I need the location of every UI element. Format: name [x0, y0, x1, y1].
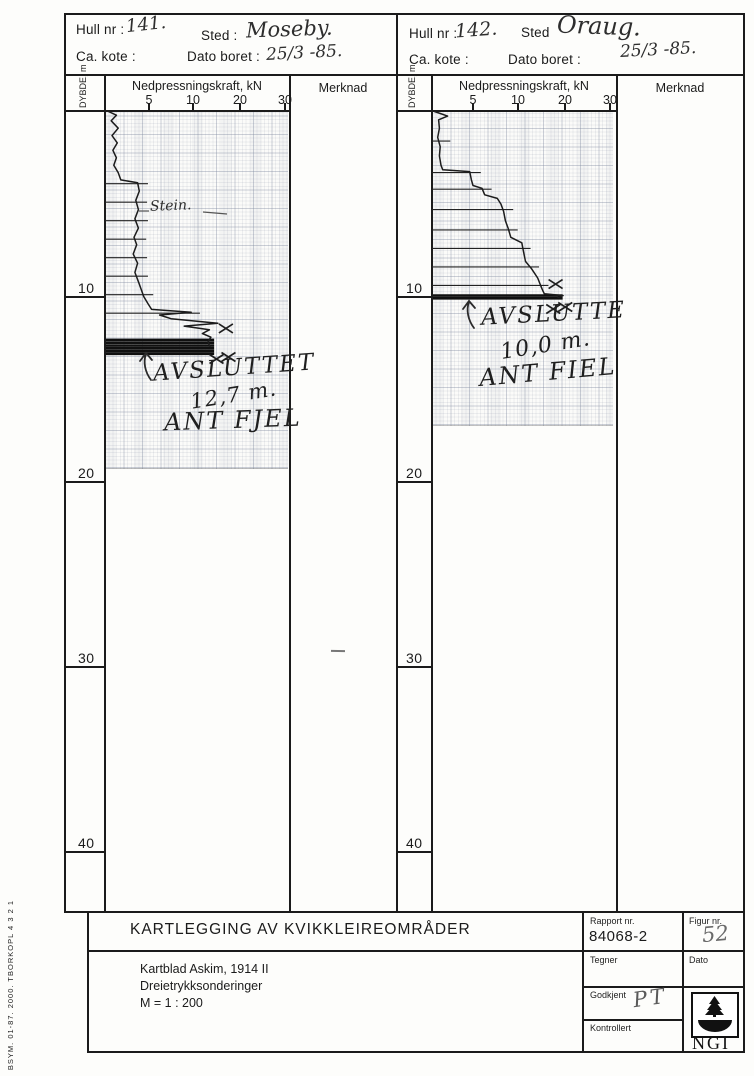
depth-axis-label-left: DYBDE, m: [78, 78, 88, 108]
kote-label-right: Ca. kote :: [409, 52, 469, 67]
depth-col-divider-left: [104, 74, 106, 913]
stray-dash: [331, 650, 345, 652]
titleblock-line2: Dreietrykksonderinger: [140, 979, 262, 993]
dato-value-left: 25/3 -85.: [266, 41, 343, 65]
border-right: [743, 13, 745, 1053]
panel-divider-vertical: [396, 13, 398, 913]
depth-rule-20-right: [397, 481, 432, 483]
titleblock-line1: Kartblad Askim, 1914 II: [140, 962, 269, 976]
border-left: [64, 13, 66, 913]
depth-rule-10-left: [64, 296, 105, 298]
hull-nr-label-left: Hull nr :: [76, 22, 124, 37]
dato-label-right: Dato boret :: [508, 52, 581, 67]
sheet-title: KARTLEGGING AV KVIKKLEIREOMRÅDER: [130, 921, 471, 939]
tickmark: [609, 103, 611, 111]
titleblock-y1020: [582, 1019, 684, 1021]
depth-label-20-right: 20: [406, 465, 423, 481]
dato-label-left: Dato boret :: [187, 49, 260, 64]
titleblock-left-border: [87, 911, 89, 1053]
border-top: [64, 13, 745, 15]
tickmark: [192, 103, 194, 111]
margin-print-code: BSYM. 01-87. 2000. TBORKOPL 4 3 2 1: [6, 900, 15, 1070]
ngi-logo-box: [691, 992, 739, 1038]
sted-label-left: Sted :: [201, 28, 237, 43]
header-divider: [64, 74, 745, 76]
tegner-label: Tegner: [590, 955, 618, 965]
sted-value-left: Moseby.: [246, 15, 333, 42]
dato-value-right: 25/3 -85.: [620, 38, 697, 62]
depth-rule-40-right: [397, 851, 432, 853]
tickmark: [148, 103, 150, 111]
panels-bottom-rule: [64, 911, 745, 913]
merknad-divider-left: [289, 74, 291, 913]
depth-label-20-left: 20: [78, 465, 95, 481]
chart-top-rule-left: [64, 110, 291, 112]
depth-rule-40-left: [64, 851, 105, 853]
depth-label-40-right: 40: [406, 835, 423, 851]
depth-label-30-left: 30: [78, 650, 95, 666]
tickmark: [239, 103, 241, 111]
depth-rule-20-left: [64, 481, 105, 483]
godkjent-label: Godkjent: [590, 990, 626, 1000]
godkjent-value: PT: [631, 984, 668, 1013]
merknad-label-left: Merknad: [319, 81, 368, 95]
titleblock-x683: [682, 911, 684, 1053]
depth-label-30-right: 30: [406, 650, 423, 666]
kote-label-left: Ca. kote :: [76, 49, 136, 64]
merknad-label-right: Merknad: [656, 81, 705, 95]
ngi-logo-text: NGI: [692, 1033, 730, 1054]
depth-rule-30-left: [64, 666, 105, 668]
hull-nr-value-right: 142.: [454, 18, 498, 43]
tickmark: [517, 103, 519, 111]
titleblock-bottom-rule: [87, 1051, 745, 1053]
force-axis-label-right: Nedpressningskraft, kN: [459, 79, 589, 93]
titleblock-row1-rule: [87, 950, 745, 952]
force-axis-label-left: Nedpressningskraft, kN: [132, 79, 262, 93]
sted-label-right: Sted: [521, 25, 550, 40]
kontrollert-label: Kontrollert: [590, 1023, 631, 1033]
tickmark: [564, 103, 566, 111]
merknad-divider-right: [616, 74, 618, 913]
dato-label: Dato: [689, 955, 708, 965]
tickmark: [472, 103, 474, 111]
depth-rule-10-right: [397, 296, 432, 298]
titleblock-line3: M = 1 : 200: [140, 996, 203, 1010]
stein-note: Stein.: [150, 197, 192, 214]
sted-value-right: Oraug.: [557, 11, 642, 42]
scanned-sounding-log-sheet: BSYM. 01-87. 2000. TBORKOPL 4 3 2 1 Hull…: [0, 0, 754, 1076]
depth-rule-30-right: [397, 666, 432, 668]
tickmark: [284, 103, 286, 111]
figur-value: 52: [701, 921, 730, 947]
hull-nr-label-right: Hull nr :: [409, 26, 457, 41]
rapport-value: 84068-2: [589, 928, 648, 945]
ngi-logo-icon: [693, 994, 737, 1036]
hull-nr-value-left: 141.: [125, 12, 167, 37]
depth-label-10-right: 10: [406, 280, 423, 296]
titleblock-x583: [582, 911, 584, 1053]
rapport-label: Rapport nr.: [590, 916, 635, 926]
depth-col-divider-right: [431, 74, 433, 913]
avsluttet-left-line3: ANT FJEL: [164, 404, 303, 437]
depth-label-40-left: 40: [78, 835, 95, 851]
depth-axis-label-right: DYBDE, m: [407, 78, 417, 108]
depth-label-10-left: 10: [78, 280, 95, 296]
